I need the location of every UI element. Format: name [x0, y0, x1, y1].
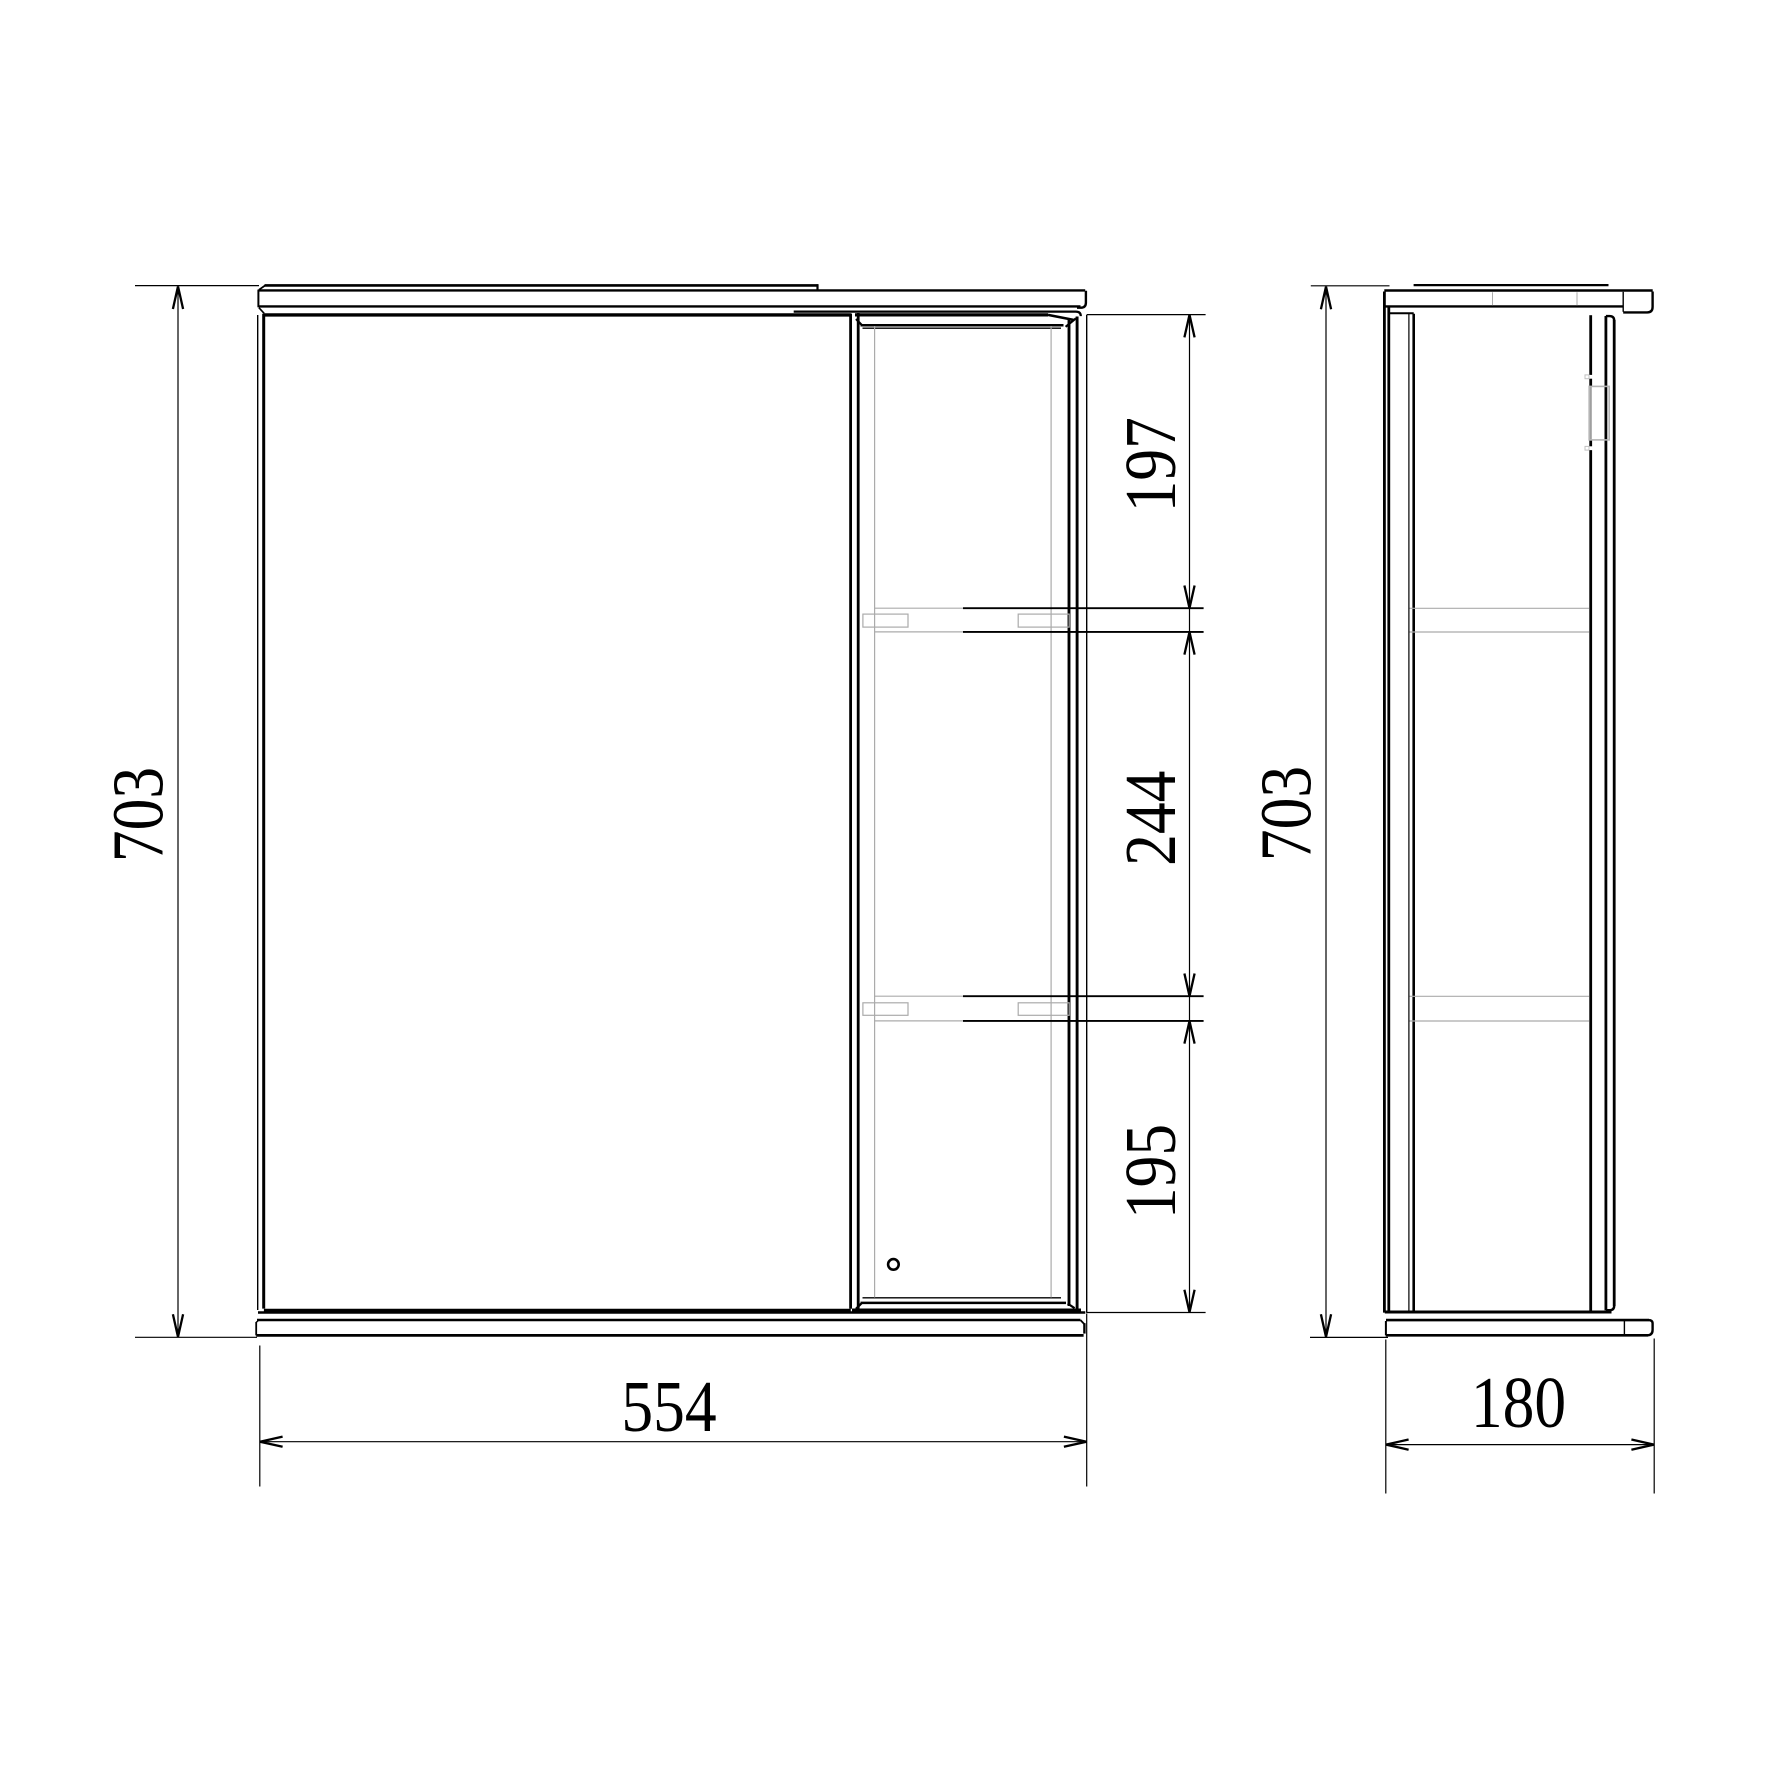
svg-text:703: 703: [97, 767, 178, 862]
svg-text:180: 180: [1471, 1362, 1566, 1443]
svg-text:195: 195: [1110, 1124, 1191, 1219]
svg-text:244: 244: [1110, 771, 1191, 866]
svg-text:554: 554: [621, 1366, 716, 1447]
svg-text:703: 703: [1246, 766, 1327, 861]
svg-text:197: 197: [1110, 417, 1191, 512]
